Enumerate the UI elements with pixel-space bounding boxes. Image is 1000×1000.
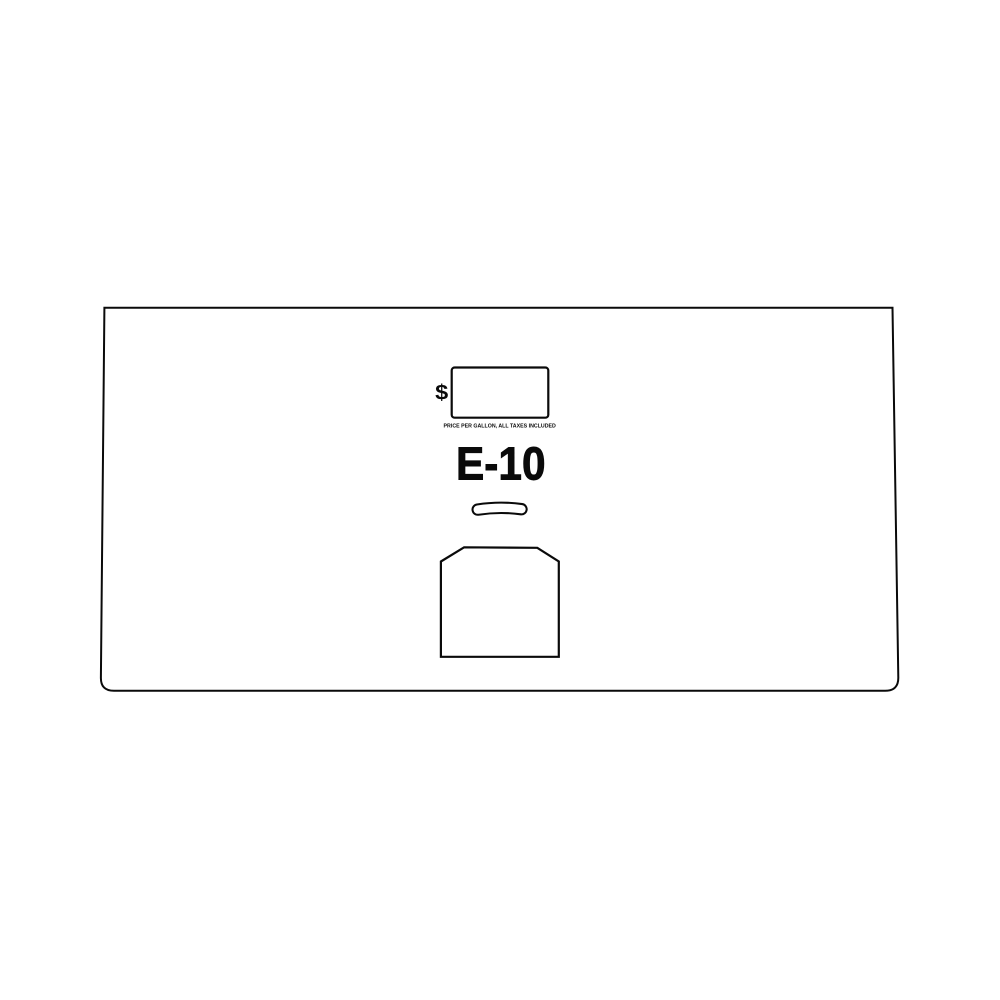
svg-text:$: $ bbox=[435, 381, 449, 405]
svg-text:E-10: E-10 bbox=[456, 438, 546, 490]
svg-text:PRICE PER GALLON, ALL TAXES IN: PRICE PER GALLON, ALL TAXES INCLUDED bbox=[444, 423, 556, 429]
